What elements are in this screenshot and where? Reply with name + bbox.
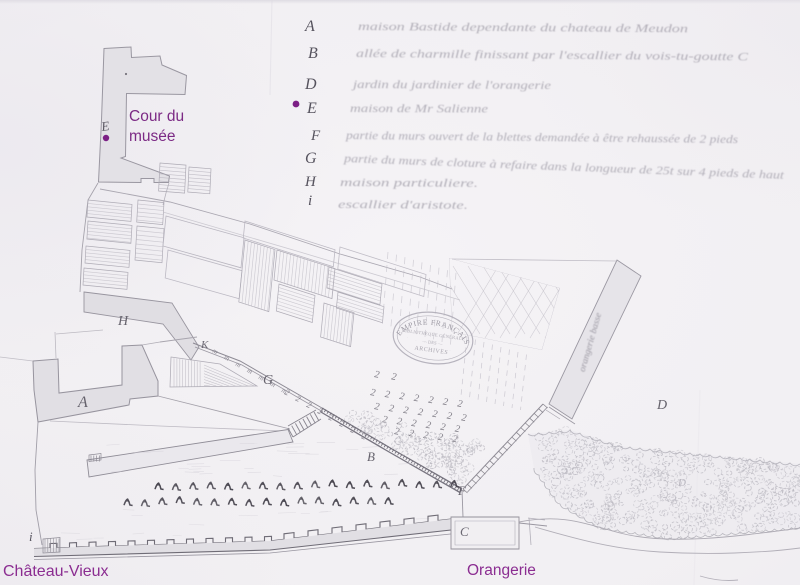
svg-text:Château-Vieux: Château-Vieux <box>3 563 109 580</box>
svg-text:jardin du jardinier de l'orang: jardin du jardinier de l'orangerie <box>351 77 552 92</box>
svg-text:B: B <box>367 449 375 464</box>
svg-text:i: i <box>308 193 312 209</box>
svg-text:A: A <box>77 394 88 411</box>
svg-text:D: D <box>656 398 667 413</box>
svg-text:escallier d'aristote.: escallier d'aristote. <box>338 197 468 212</box>
svg-text:E: E <box>306 100 317 117</box>
svg-text:F: F <box>310 128 321 144</box>
svg-text:C: C <box>460 524 469 539</box>
svg-text:K: K <box>200 339 209 351</box>
svg-text:H: H <box>304 174 317 190</box>
svg-text:B: B <box>308 45 318 62</box>
svg-text:maison de Mr Salienne: maison de Mr Salienne <box>350 101 489 115</box>
svg-text:G: G <box>305 150 317 167</box>
svg-text:D: D <box>304 76 317 93</box>
svg-text:Cour du: Cour du <box>129 108 184 125</box>
svg-text:Orangerie: Orangerie <box>467 562 536 579</box>
svg-text:A: A <box>304 18 315 35</box>
svg-text:i: i <box>29 529 33 544</box>
svg-text:maison particuliere.: maison particuliere. <box>340 175 478 190</box>
svg-text:H: H <box>117 314 129 329</box>
svg-text:maison Bastide dependante du c: maison Bastide dependante du chateau de … <box>358 19 688 35</box>
svg-text:musée: musée <box>129 128 176 145</box>
